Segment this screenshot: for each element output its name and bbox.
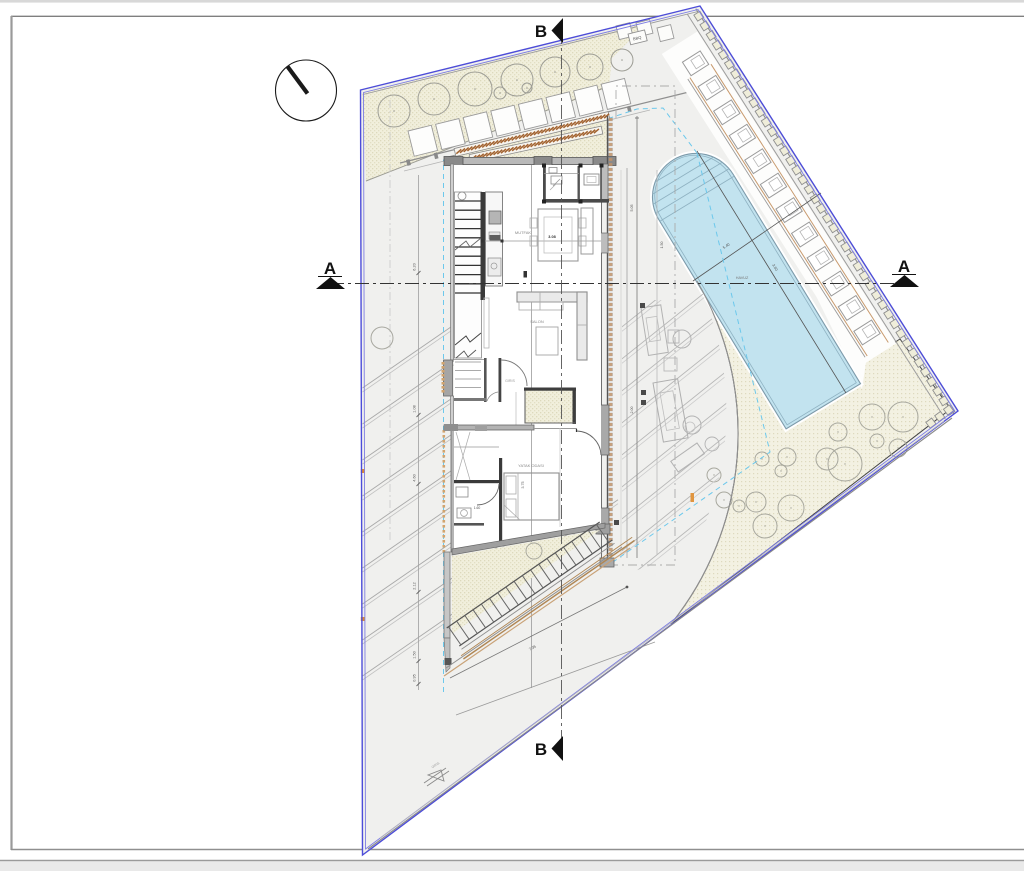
svg-text:2.12: 2.12 [413,582,417,589]
svg-text:B: B [535,740,547,759]
svg-text:3.08: 3.08 [548,235,555,239]
svg-text:3.75: 3.75 [521,482,525,489]
svg-text:2.00: 2.00 [630,407,634,414]
svg-text:1.08: 1.08 [413,405,417,412]
svg-text:1.50: 1.50 [660,242,664,249]
svg-text:SALON: SALON [530,319,544,324]
svg-text:B: B [535,22,547,41]
svg-text:5.05: 5.05 [630,205,634,212]
svg-text:4.60: 4.60 [413,474,417,481]
svg-text:MUTFAK: MUTFAK [515,230,532,235]
svg-text:1.50: 1.50 [413,651,417,658]
svg-text:YATAK ODASI: YATAK ODASI [518,463,544,468]
svg-text:A: A [898,257,910,276]
svg-text:1.60: 1.60 [474,506,481,510]
svg-text:GIRIS: GIRIS [505,379,515,383]
svg-text:HAVUZ: HAVUZ [736,276,749,280]
svg-text:6.20: 6.20 [413,263,417,270]
svg-text:A: A [324,259,336,278]
svg-text:0.95: 0.95 [413,674,417,681]
